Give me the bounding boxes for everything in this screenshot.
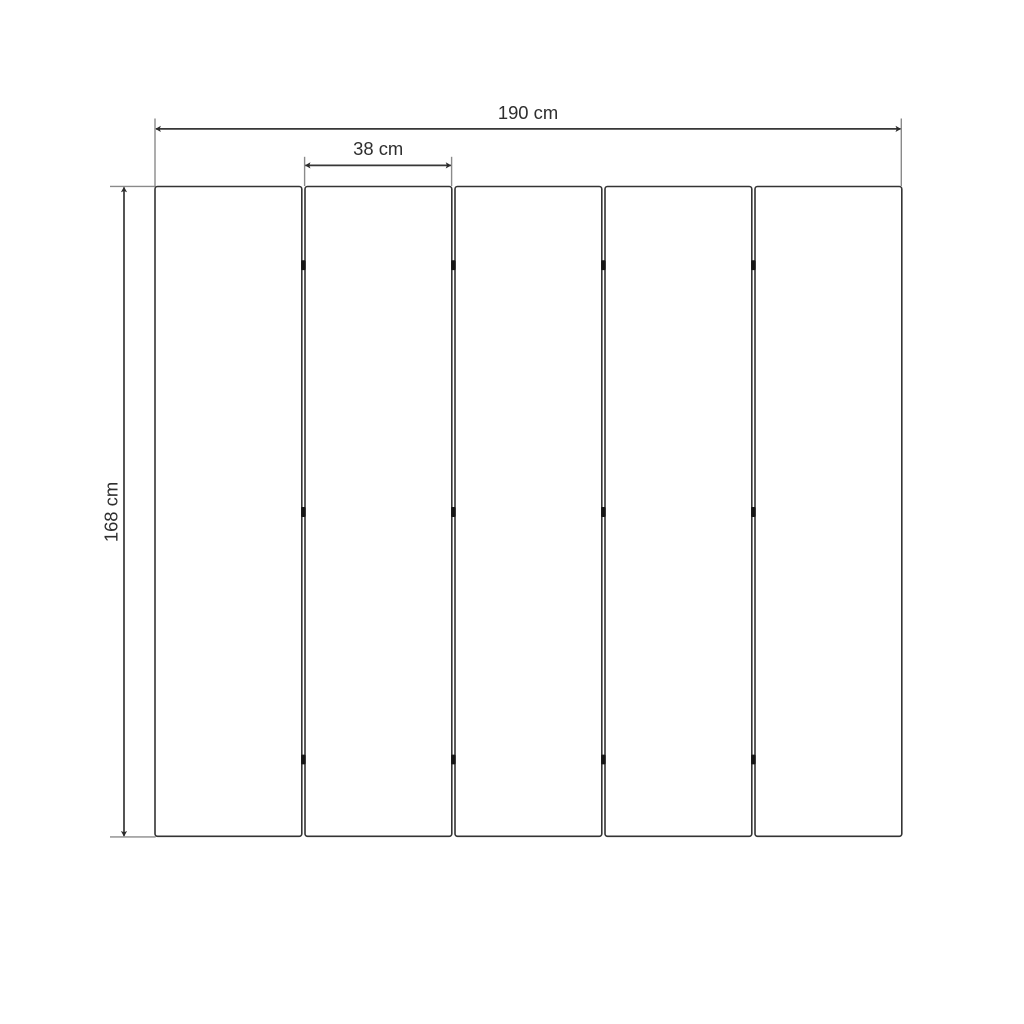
svg-text:38 cm: 38 cm [353, 138, 403, 159]
svg-text:190 cm: 190 cm [498, 102, 558, 123]
svg-text:168 cm: 168 cm [100, 482, 121, 542]
